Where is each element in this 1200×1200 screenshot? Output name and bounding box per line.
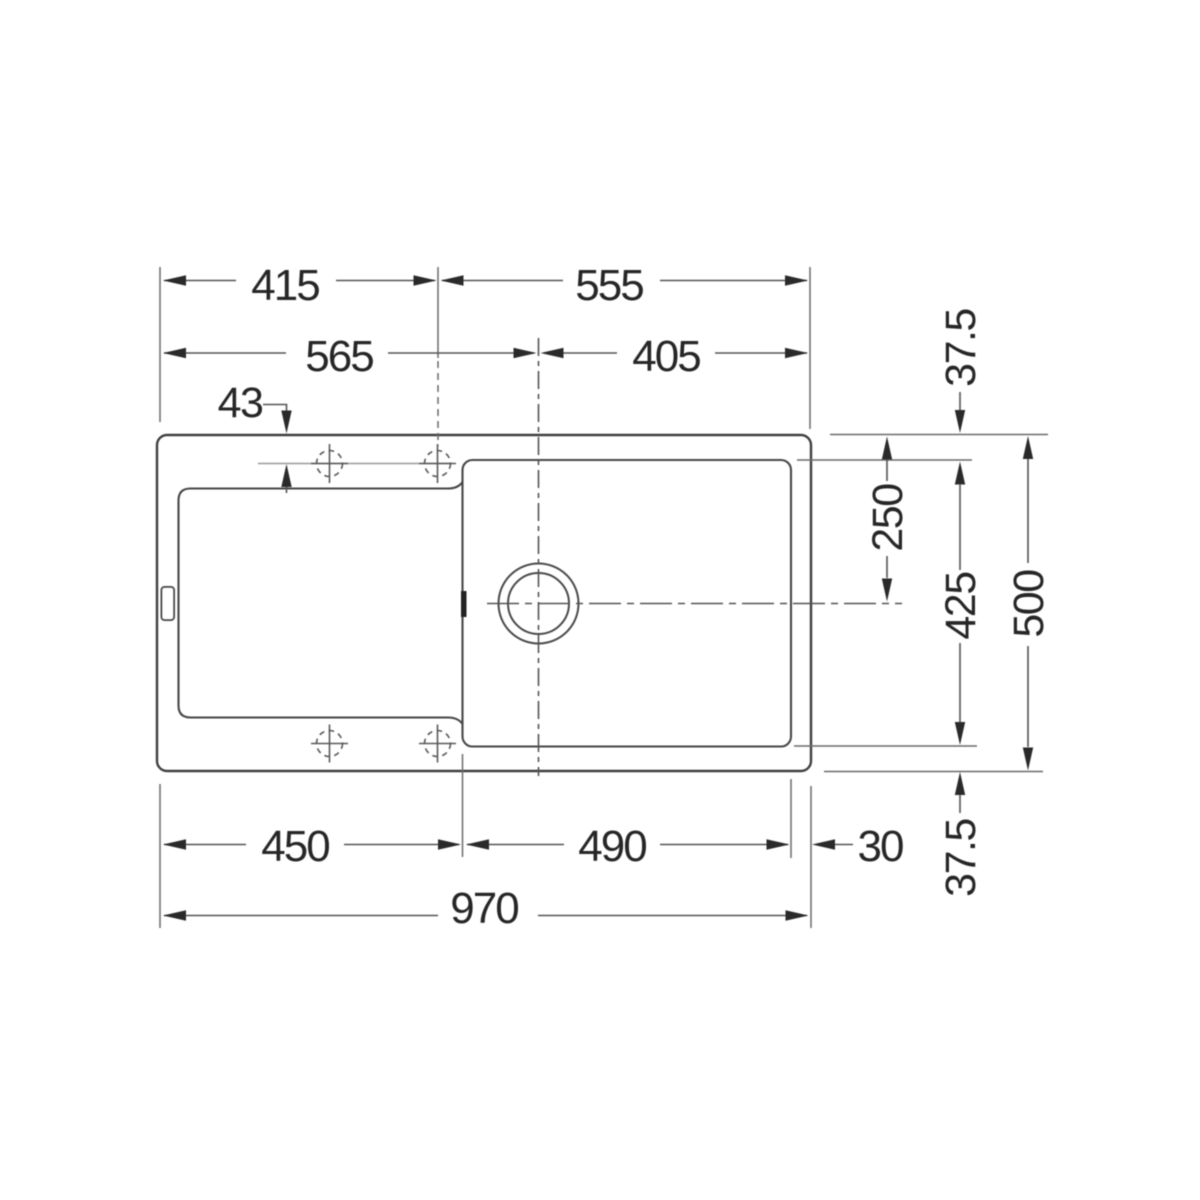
svg-text:250: 250	[864, 484, 912, 552]
svg-text:555: 555	[575, 261, 643, 310]
svg-text:415: 415	[251, 261, 319, 310]
svg-text:450: 450	[261, 822, 329, 871]
svg-text:30: 30	[858, 822, 903, 871]
svg-text:405: 405	[632, 332, 700, 381]
svg-text:425: 425	[937, 572, 985, 640]
svg-text:37.5: 37.5	[937, 819, 985, 897]
svg-text:43: 43	[218, 379, 263, 427]
svg-text:970: 970	[450, 884, 518, 933]
svg-text:500: 500	[1005, 570, 1053, 638]
svg-text:37.5: 37.5	[937, 309, 985, 387]
svg-text:565: 565	[305, 332, 373, 381]
svg-text:490: 490	[578, 822, 646, 871]
